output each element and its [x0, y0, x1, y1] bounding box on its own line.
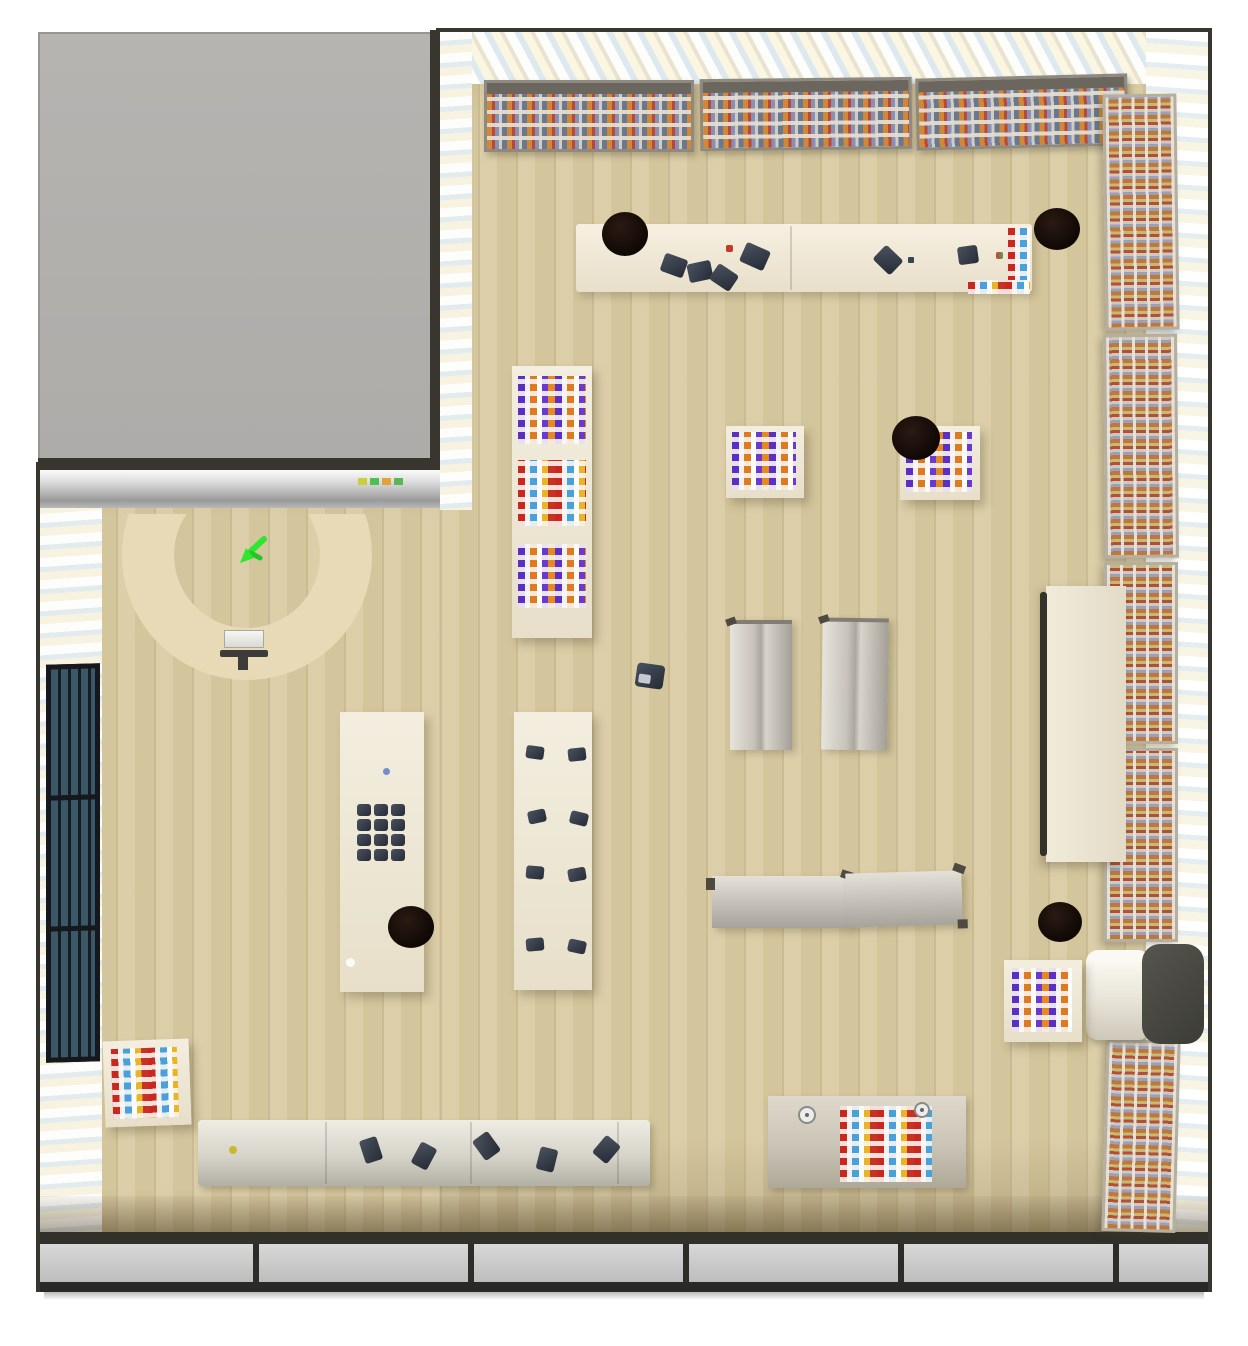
wall-merchandise-rack [1101, 1039, 1180, 1233]
round-black-bin [892, 416, 940, 460]
display-shoe [374, 834, 388, 846]
counter-small-item [908, 257, 914, 263]
item-center-dot [920, 1108, 924, 1112]
shelf-top-bar [487, 83, 691, 94]
round-black-bin [1034, 208, 1080, 250]
single-shoe-on-floor [634, 662, 665, 690]
wall-merchandise-rack [1102, 93, 1179, 330]
floor-edge-shadow [40, 1196, 1208, 1234]
display-shoe [357, 819, 371, 831]
display-shoe [357, 849, 371, 861]
shelf-hook [818, 614, 830, 624]
gray-unexplored-block [38, 32, 432, 460]
empty-gondola-shelf-vertical [730, 620, 792, 750]
shelf-products [703, 91, 910, 148]
item-center-dot [805, 1113, 809, 1117]
bench-seam [325, 1122, 327, 1184]
display-shoe [525, 865, 544, 880]
tall-cream-cabinet-panel [1046, 586, 1126, 862]
dot [382, 478, 391, 485]
counter-product-strip-vertical [1008, 228, 1030, 288]
agent-position-marker [236, 532, 272, 568]
display-shoe [391, 849, 405, 861]
mosaic-table-purple-orange [732, 432, 796, 490]
display-shoe [374, 849, 388, 861]
room-border-top [436, 28, 1212, 32]
storefront-mullion [898, 1244, 904, 1282]
round-black-bin [1038, 902, 1082, 942]
silver-wall-band [40, 470, 440, 508]
bench-seam [470, 1122, 472, 1184]
round-white-item [798, 1106, 816, 1124]
register-stand-stem [238, 657, 248, 670]
window-section [51, 668, 95, 795]
counter-product-strip-horizontal [968, 280, 1030, 294]
storefront-mullion [468, 1244, 474, 1282]
window-section [51, 799, 95, 926]
counter-red-item [726, 245, 733, 252]
storefront-top-frame [36, 1232, 1212, 1244]
mosaic-table-purple-orange [1012, 968, 1072, 1032]
storefront-mullion [1113, 1244, 1119, 1282]
mosaic-table-red-blue [518, 460, 586, 526]
empty-gondola-shelf-vertical [821, 618, 889, 751]
display-shoe [391, 804, 405, 816]
shelf-hook [725, 617, 737, 627]
mosaic-table-red-blue [111, 1047, 179, 1119]
shelf-hook [706, 878, 715, 890]
display-shoe [525, 937, 544, 952]
display-shoe [374, 804, 388, 816]
room-border-left-lower [36, 462, 40, 1292]
display-shoe [374, 819, 388, 831]
round-white-item [914, 1102, 930, 1118]
empty-gondola-shelf-horizontal [712, 876, 850, 928]
white-dot-item [346, 958, 355, 967]
cabinet-dark-edge [1040, 592, 1047, 856]
counter-shoe [957, 245, 979, 266]
storefront-glass [36, 1244, 1212, 1282]
empty-gondola-shelf-horizontal [845, 870, 962, 927]
mosaic-table-purple-orange [518, 544, 586, 608]
storefront-outer-shadow [44, 1292, 1204, 1300]
display-shoe [357, 804, 371, 816]
dot [358, 478, 367, 485]
counter-seam [790, 226, 792, 290]
room-border-right [1208, 28, 1212, 1292]
shelf-products [487, 94, 691, 149]
shoe-highlight [638, 673, 651, 684]
bench-yellow-item [229, 1146, 237, 1154]
dot [394, 478, 403, 485]
register-stand-bar [220, 650, 268, 657]
shelf-hook [958, 919, 968, 928]
bench-seam [617, 1122, 619, 1184]
ceiling-merchandise-shelf [484, 80, 694, 152]
display-shoe [391, 819, 405, 831]
wall-merchandise-rack [1103, 334, 1179, 559]
shelf-products [918, 87, 1125, 147]
rolled-mat-dark-end [1142, 944, 1204, 1044]
store-topdown-scene[interactable] [0, 0, 1248, 1346]
ceiling-merchandise-shelf [700, 77, 913, 151]
main-left-wall-wallpaper [440, 32, 472, 510]
counter-small-item [996, 252, 1003, 259]
round-black-bin [388, 906, 434, 948]
rolled-mat-white-part [1086, 950, 1150, 1040]
agent-arrow-icon [236, 532, 272, 568]
cash-register [224, 630, 264, 648]
storefront-bottom-frame [36, 1282, 1212, 1292]
block-divider-horizontal [38, 458, 440, 470]
storefront-mullion [253, 1244, 259, 1282]
blue-dot-item [383, 768, 390, 775]
display-shoe [357, 834, 371, 846]
dark-grid-window [46, 663, 100, 1062]
round-black-bin [602, 212, 648, 256]
display-shoe [525, 745, 545, 760]
dot [370, 478, 379, 485]
display-shoe [567, 747, 586, 762]
display-shoe [391, 834, 405, 846]
window-section [51, 930, 95, 1057]
ceiling-merchandise-shelf [915, 73, 1129, 150]
indicator-dots-sign [358, 478, 406, 486]
storefront-mullion [683, 1244, 689, 1282]
mosaic-table-purple-orange [518, 376, 586, 444]
block-divider-vertical [430, 30, 440, 470]
